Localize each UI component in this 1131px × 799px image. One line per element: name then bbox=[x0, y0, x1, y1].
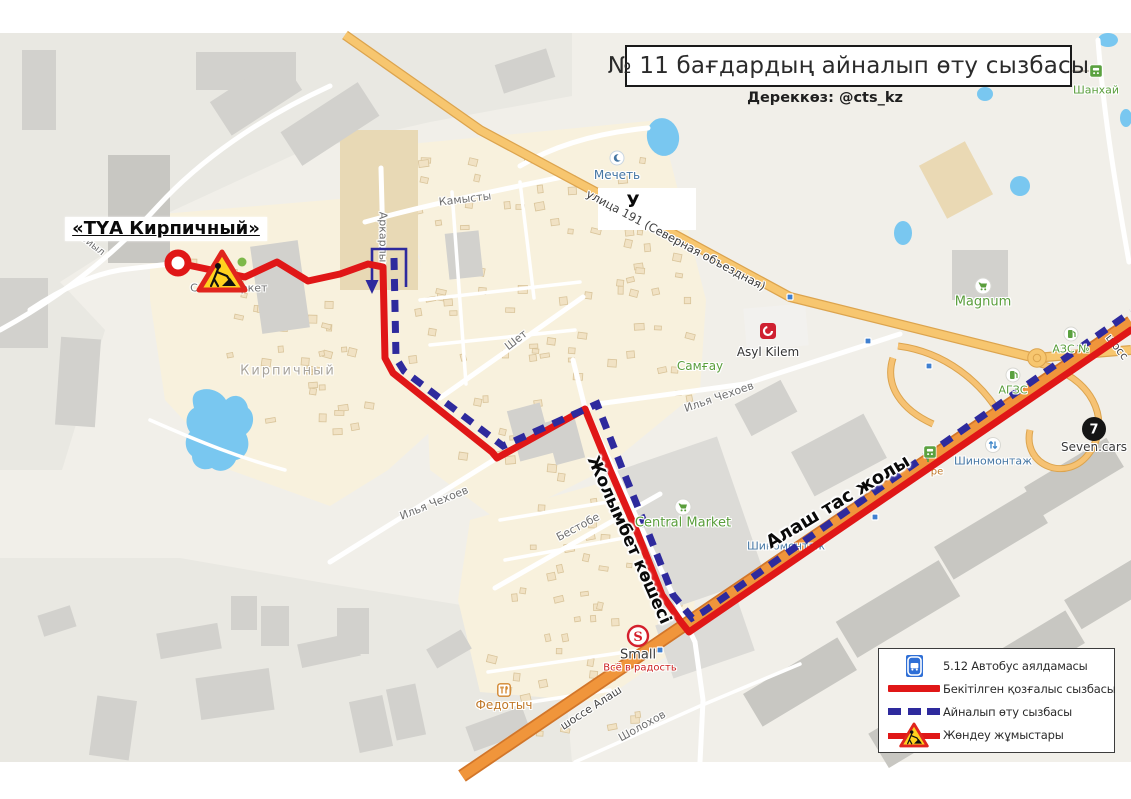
white-patch bbox=[598, 188, 696, 230]
smalllogo-icon: S bbox=[627, 625, 650, 648]
street-label: Аркарлы bbox=[377, 212, 390, 263]
street-label: улица 191 (Северная объездная) bbox=[584, 187, 768, 294]
detour-route-line bbox=[394, 258, 1131, 618]
field-patch bbox=[919, 141, 993, 218]
lanes bbox=[150, 182, 800, 762]
legend-row-detour: Айналып өту сызбасы bbox=[885, 700, 1108, 723]
detour-start-bracket bbox=[372, 249, 406, 287]
industrial-zones bbox=[0, 33, 572, 762]
street-label: шосс bbox=[1103, 332, 1131, 363]
stop-icon bbox=[924, 446, 937, 459]
approved-route-sample bbox=[888, 685, 940, 692]
legend-row-bus-stop: 5.12 Автобус аялдамасы bbox=[885, 654, 1108, 677]
legend-row-roadworks: Жөндеу жұмыстары bbox=[885, 723, 1108, 747]
route-terminus-icon bbox=[168, 253, 188, 273]
stop-icon bbox=[1090, 65, 1103, 78]
poi-label: Seven.cars bbox=[1061, 440, 1127, 454]
rest-icon bbox=[497, 683, 511, 697]
bus-stop-sign-icon bbox=[885, 655, 943, 677]
street-label: С bbox=[190, 282, 198, 295]
svg-text:7: 7 bbox=[1089, 423, 1098, 438]
roadworks-legend-icon bbox=[888, 723, 940, 747]
legend-row-approved: Бекітілген қозғалыс сызбасы bbox=[885, 677, 1108, 700]
roadworks-icon bbox=[199, 252, 245, 290]
street-label: Шолохов bbox=[616, 708, 668, 745]
residential-houses bbox=[187, 152, 695, 736]
asyl-icon bbox=[760, 323, 777, 340]
street-label: Камысты bbox=[438, 189, 492, 208]
poi-label: Самғау bbox=[677, 359, 723, 373]
workshop-poi-icon bbox=[238, 258, 247, 267]
street-label: шоссе Алаш bbox=[558, 683, 624, 732]
detour-start-arrow-icon bbox=[366, 280, 379, 294]
fuel-icon bbox=[1064, 327, 1079, 342]
poi-sublabel: Всё в радость bbox=[603, 663, 677, 674]
poi-label: АЗС № bbox=[1052, 343, 1089, 356]
street-label: Бестобе bbox=[554, 510, 602, 544]
route-annotation: «ТҮА Кирпичный» bbox=[65, 217, 267, 241]
residential-zones bbox=[150, 120, 706, 702]
poi-label: Asyl Kilem bbox=[737, 345, 799, 359]
street-label: Шет bbox=[502, 327, 530, 353]
poi-label: Central Market bbox=[635, 516, 731, 531]
bus-stop-markers bbox=[657, 294, 932, 653]
legend-label: Жөндеу жұмыстары bbox=[943, 728, 1064, 742]
poi-label: Magnum bbox=[955, 295, 1012, 310]
fuel-icon bbox=[1006, 368, 1021, 383]
poi-label: АГЗС bbox=[999, 384, 1028, 397]
legend-label: Бекітілген қозғалыс сызбасы bbox=[943, 682, 1116, 696]
approved-route-line bbox=[178, 262, 1131, 632]
street-label: Кирпичный bbox=[240, 364, 336, 379]
lakes bbox=[186, 33, 1131, 471]
route-annotation: Жолымбет көшесі bbox=[583, 453, 675, 627]
mosque-icon bbox=[609, 150, 625, 166]
source-credit: Дереккөз: @cts_kz bbox=[690, 90, 960, 106]
legend: 5.12 Автобус аялдамасы Бекітілген қозғал… bbox=[878, 648, 1115, 753]
poi-label: Мечеть bbox=[594, 168, 640, 182]
street-label: Ойыл bbox=[77, 232, 106, 258]
poi-label: Федотыч bbox=[476, 698, 533, 712]
street-label: Илья Чехоев bbox=[398, 483, 470, 522]
street-label: Шиномонтаж bbox=[747, 540, 825, 553]
route-annotation: У bbox=[626, 192, 639, 212]
poi-label: Шанхай bbox=[1073, 84, 1119, 97]
svg-text:S: S bbox=[633, 630, 642, 645]
street-label: Илья Чехоев bbox=[683, 379, 756, 415]
detour-route-sample bbox=[888, 708, 940, 715]
map-title-text: № 11 бағдардың айналып өту сызбасы bbox=[608, 53, 1090, 79]
route-annotation: Алаш тас жолы bbox=[762, 451, 913, 553]
map-title: № 11 бағдардың айналып өту сызбасы bbox=[625, 45, 1072, 87]
cart-icon bbox=[975, 278, 992, 295]
detour-map-page: ОйылКирпичныйАркарлыКамыстыШетИлья Чехое… bbox=[0, 0, 1131, 799]
legend-label: 5.12 Автобус аялдамасы bbox=[943, 659, 1088, 673]
street-label: ре bbox=[931, 467, 944, 478]
seven-icon: 7 bbox=[1081, 416, 1107, 442]
poi-label: Шиномонтаж bbox=[954, 455, 1032, 468]
poi-label: Small bbox=[620, 648, 656, 663]
legend-label: Айналып өту сызбасы bbox=[943, 705, 1072, 719]
transit-stop-pin-icon bbox=[924, 449, 933, 463]
tire-icon bbox=[985, 437, 1001, 453]
street-label: ркет bbox=[241, 282, 268, 295]
cart-icon bbox=[675, 499, 692, 516]
